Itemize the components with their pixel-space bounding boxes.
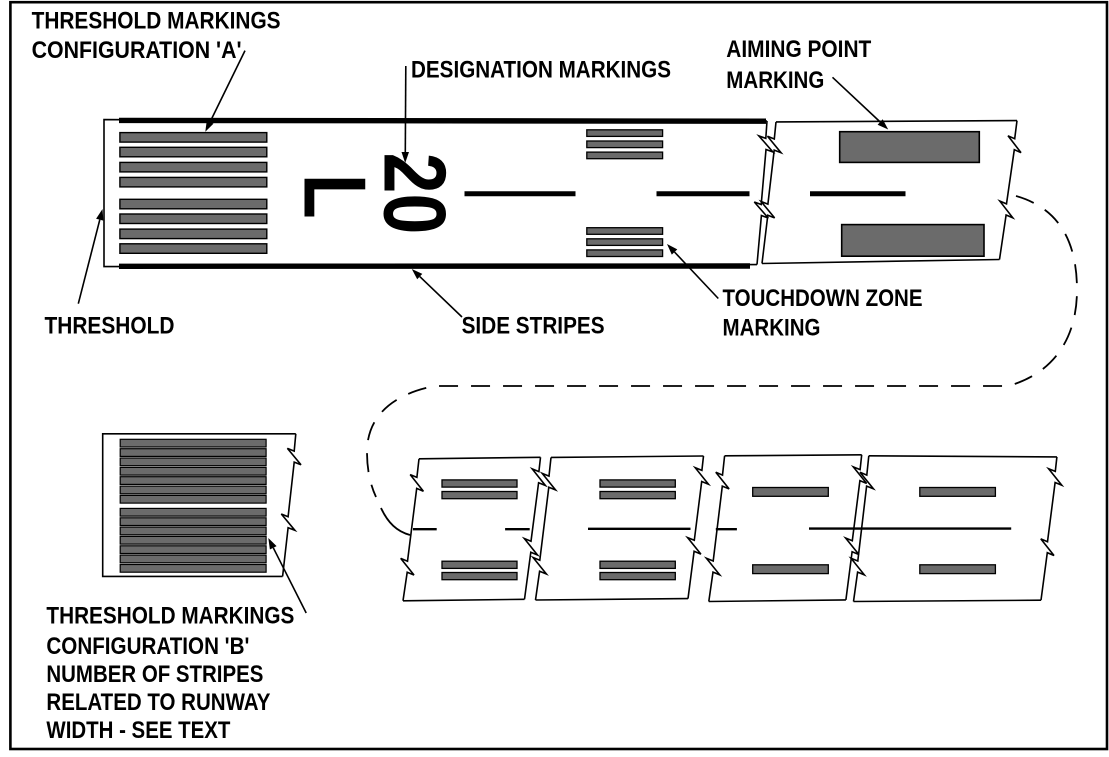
svg-text:TOUCHDOWN ZONE: TOUCHDOWN ZONE	[723, 285, 923, 312]
svg-text:MARKING: MARKING	[723, 315, 821, 342]
svg-text:CONFIGURATION 'B': CONFIGURATION 'B'	[46, 633, 249, 660]
svg-text:WIDTH - SEE TEXT: WIDTH - SEE TEXT	[46, 717, 230, 744]
svg-text:NUMBER OF STRIPES: NUMBER OF STRIPES	[46, 661, 263, 688]
svg-text:THRESHOLD: THRESHOLD	[45, 313, 175, 340]
svg-text:AIMING POINT: AIMING POINT	[726, 36, 871, 63]
svg-text:RELATED TO RUNWAY: RELATED TO RUNWAY	[46, 689, 270, 716]
svg-text:L: L	[285, 174, 383, 219]
svg-text:THRESHOLD MARKINGS: THRESHOLD MARKINGS	[46, 603, 294, 630]
svg-text:SIDE STRIPES: SIDE STRIPES	[462, 313, 605, 340]
svg-text:MARKING: MARKING	[726, 67, 824, 94]
svg-text:DESIGNATION MARKINGS: DESIGNATION MARKINGS	[411, 56, 671, 83]
svg-text:CONFIGURATION 'A': CONFIGURATION 'A'	[32, 37, 242, 64]
svg-text:THRESHOLD MARKINGS: THRESHOLD MARKINGS	[32, 8, 281, 35]
